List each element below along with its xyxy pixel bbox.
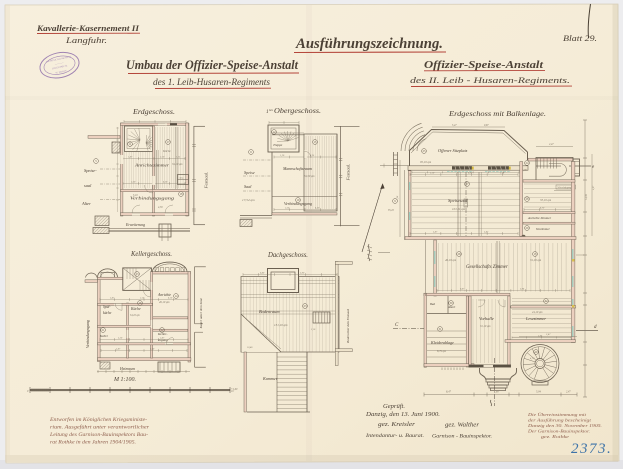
svg-text:2373.: 2373. [571, 441, 612, 457]
svg-text:21: 21 [102, 328, 106, 332]
svg-text:Kammer: Kammer [262, 376, 278, 381]
svg-text:Kleiderablage: Kleiderablage [430, 340, 454, 345]
svg-text:Erdgeschoss mit Balkenlage.: Erdgeschoss mit Balkenlage. [448, 110, 546, 118]
svg-text:29: 29 [526, 226, 530, 230]
svg-text:Leitung des Garnison-Bauinspek: Leitung des Garnison-Bauinspektors Bau- [49, 433, 149, 438]
svg-text:34,50 qm: 34,50 qm [304, 175, 314, 178]
svg-text:8,47: 8,47 [446, 391, 451, 394]
svg-text:17: 17 [167, 140, 171, 144]
svg-text:4,79: 4,79 [530, 357, 535, 360]
svg-text:gez. Rothke: gez. Rothke [541, 434, 569, 439]
svg-text:gez. Kreisler: gez. Kreisler [378, 422, 416, 428]
svg-text:25: 25 [423, 149, 427, 153]
svg-text:Intendantur- u. Baurat.: Intendantur- u. Baurat. [365, 433, 424, 439]
svg-text:Verbindungsgang: Verbindungsgang [130, 196, 174, 201]
svg-text:Heizraum: Heizraum [119, 367, 135, 371]
svg-text:Entworfen im Königlichen Krieg: Entworfen im Königlichen Kriegsministe- [49, 418, 148, 423]
svg-text:Langfuhr.: Langfuhr. [65, 36, 107, 45]
svg-text:Vorhalle: Vorhalle [479, 316, 494, 321]
svg-text:5,94: 5,94 [536, 391, 541, 394]
svg-text:4,50: 4,50 [158, 206, 163, 209]
svg-text:Offizier-Speise-Anstalt: Offizier-Speise-Anstalt [424, 60, 544, 71]
svg-text:des 1. Leib-Husaren-Regiments: des 1. Leib-Husaren-Regiments [153, 78, 270, 88]
svg-text:14,35: 14,35 [585, 193, 588, 200]
svg-text:Alter: Alter [81, 201, 91, 206]
svg-text:des II. Leib - Husaren-Regim: des II. Leib - Husaren-Regiments. [410, 75, 570, 85]
svg-text:Spül-: Spül- [103, 305, 111, 309]
svg-text:Blatt 29.: Blatt 29. [563, 34, 597, 43]
svg-text:Mannschaftsraum: Mannschaftsraum [282, 166, 312, 171]
svg-text:2,47: 2,47 [566, 391, 571, 394]
svg-text:rat Rothke in den Jahren 1904/: rat Rothke in den Jahren 1904/1905. [50, 441, 136, 446]
svg-text:Keller: Keller [99, 334, 109, 338]
svg-text:Küche: Küche [130, 307, 141, 311]
svg-text:2,47: 2,47 [546, 333, 551, 336]
svg-text:24: 24 [526, 161, 530, 165]
svg-text:Erweiterung: Erweiterung [125, 223, 145, 227]
svg-text:24,10 qm: 24,10 qm [532, 311, 542, 314]
svg-text:12: 12 [273, 130, 277, 134]
svg-text:34,10 qm: 34,10 qm [130, 314, 140, 317]
svg-text:15: 15 [314, 140, 318, 144]
svg-text:Lesezimmer: Lesezimmer [525, 316, 546, 321]
svg-text:34,10 qm: 34,10 qm [172, 163, 182, 166]
svg-text:26: 26 [458, 252, 462, 256]
svg-text:Bad: Bad [430, 302, 435, 306]
svg-text:Anrichtezimmer: Anrichtezimmer [134, 163, 170, 168]
svg-text:8,79 qm: 8,79 qm [437, 350, 446, 353]
svg-text:Offener Sitzplatz: Offener Sitzplatz [438, 148, 468, 153]
svg-text:32: 32 [545, 299, 549, 303]
svg-text:Obergeschoss.: Obergeschoss. [274, 107, 321, 115]
svg-text:Kavallerie-Kasernement II: Kavallerie-Kasernement II [36, 24, 140, 33]
svg-text:Verbindungsgang: Verbindungsgang [85, 320, 90, 348]
svg-text:Garnison - Bauinspektor.: Garnison - Bauinspektor. [432, 434, 492, 440]
svg-text:1,80: 1,80 [494, 391, 499, 394]
svg-text:Danzig, den 13. Juni 1900.: Danzig, den 13. Juni 1900. [365, 412, 440, 418]
svg-text:Kellergeschoss.: Kellergeschoss. [130, 250, 172, 258]
svg-text:10,40: 10,40 [247, 346, 253, 349]
svg-text:Festsaal.: Festsaal. [346, 164, 351, 182]
svg-text:19: 19 [297, 198, 301, 202]
svg-text:Speise-: Speise- [84, 168, 97, 173]
svg-text:2,47: 2,47 [549, 143, 554, 146]
svg-text:Gesellschafts Zimmer: Gesellschafts Zimmer [466, 265, 508, 270]
svg-text:5,47: 5,47 [452, 124, 457, 127]
svg-text:Dachgeschoss.: Dachgeschoss. [267, 251, 308, 259]
svg-text:Küche: Küche [162, 149, 171, 153]
svg-text:der Ausführung bescheinigt: der Ausführung bescheinigt [528, 418, 592, 423]
svg-text:13: 13 [136, 272, 140, 276]
svg-text:Speise: Speise [244, 170, 255, 175]
svg-text:Die Übereinstimmung mit: Die Übereinstimmung mit [527, 412, 587, 417]
svg-text:Bodenraum: Bodenraum [259, 309, 280, 314]
svg-text:14: 14 [175, 294, 179, 298]
svg-text:46,10 qm: 46,10 qm [159, 301, 169, 304]
svg-text:31: 31 [439, 327, 443, 331]
svg-text:22: 22 [161, 328, 165, 332]
svg-text:13: 13 [534, 252, 538, 256]
svg-text:Danzig den 30. November 1905.: Danzig den 30. November 1905. [527, 423, 602, 428]
svg-text:18: 18 [180, 192, 184, 196]
svg-text:Geprüft.: Geprüft. [383, 403, 405, 410]
svg-text:Abst.: Abst. [178, 177, 184, 180]
svg-text:Saal: Saal [244, 184, 252, 189]
svg-text:Anrichte Zimmer: Anrichte Zimmer [527, 216, 552, 220]
svg-text:9,87: 9,87 [484, 124, 489, 127]
svg-text:16: 16 [139, 301, 143, 305]
svg-text:11: 11 [129, 142, 132, 146]
svg-text:Treppe: Treppe [273, 143, 283, 147]
svg-text:Erdgeschoss.: Erdgeschoss. [132, 108, 175, 116]
svg-text:tes: tes [269, 108, 273, 112]
svg-text:rium. Ausgeführt unter verant: rium. Ausgeführt unter verantwortlicher [50, 426, 149, 431]
svg-text:M 1:100.: M 1:100. [113, 377, 136, 383]
svg-text:Der Garnison-Bauinspektor.: Der Garnison-Bauinspektor. [527, 429, 590, 434]
svg-text:23: 23 [304, 304, 308, 308]
svg-text:Umbau der Offizier-Speise-Anst: Umbau der Offizier-Speise-Anstalt [126, 57, 298, 72]
svg-text:35,10: 35,10 [388, 209, 395, 212]
svg-text:31,10 qm: 31,10 qm [480, 325, 490, 328]
svg-text:30: 30 [450, 301, 454, 305]
svg-text:Ausführungszeichnung.: Ausführungszeichnung. [295, 36, 443, 52]
svg-text:28: 28 [526, 197, 530, 201]
svg-text:gez. Walther: gez. Walther [445, 423, 480, 429]
svg-text:küche: küche [103, 311, 112, 315]
svg-text:saal: saal [84, 183, 92, 188]
svg-text:20: 20 [535, 350, 539, 354]
svg-text:Keller unter dem Saal.: Keller unter dem Saal. [199, 297, 203, 329]
svg-text:Vorzimmer: Vorzimmer [536, 227, 551, 231]
svg-text:Boden über dem Festsaal: Boden über dem Festsaal [346, 309, 350, 343]
svg-text:Festsaal.: Festsaal. [204, 172, 209, 190]
